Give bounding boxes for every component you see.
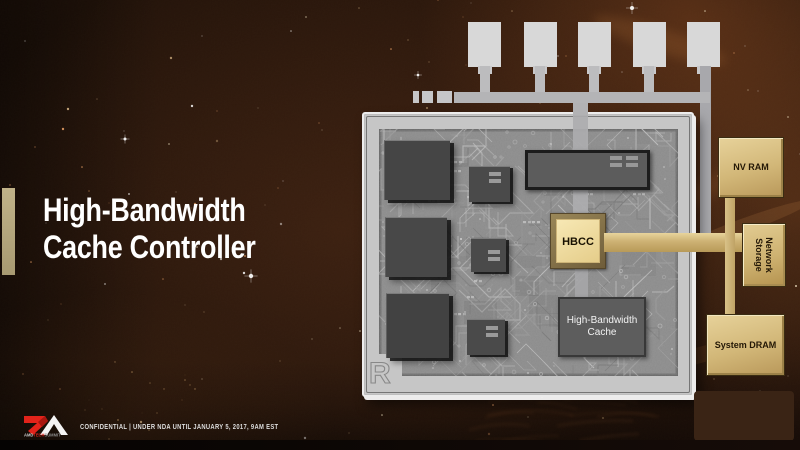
svg-text:AMDTECHSUMMIT: AMDTECHSUMMIT [24,433,61,438]
